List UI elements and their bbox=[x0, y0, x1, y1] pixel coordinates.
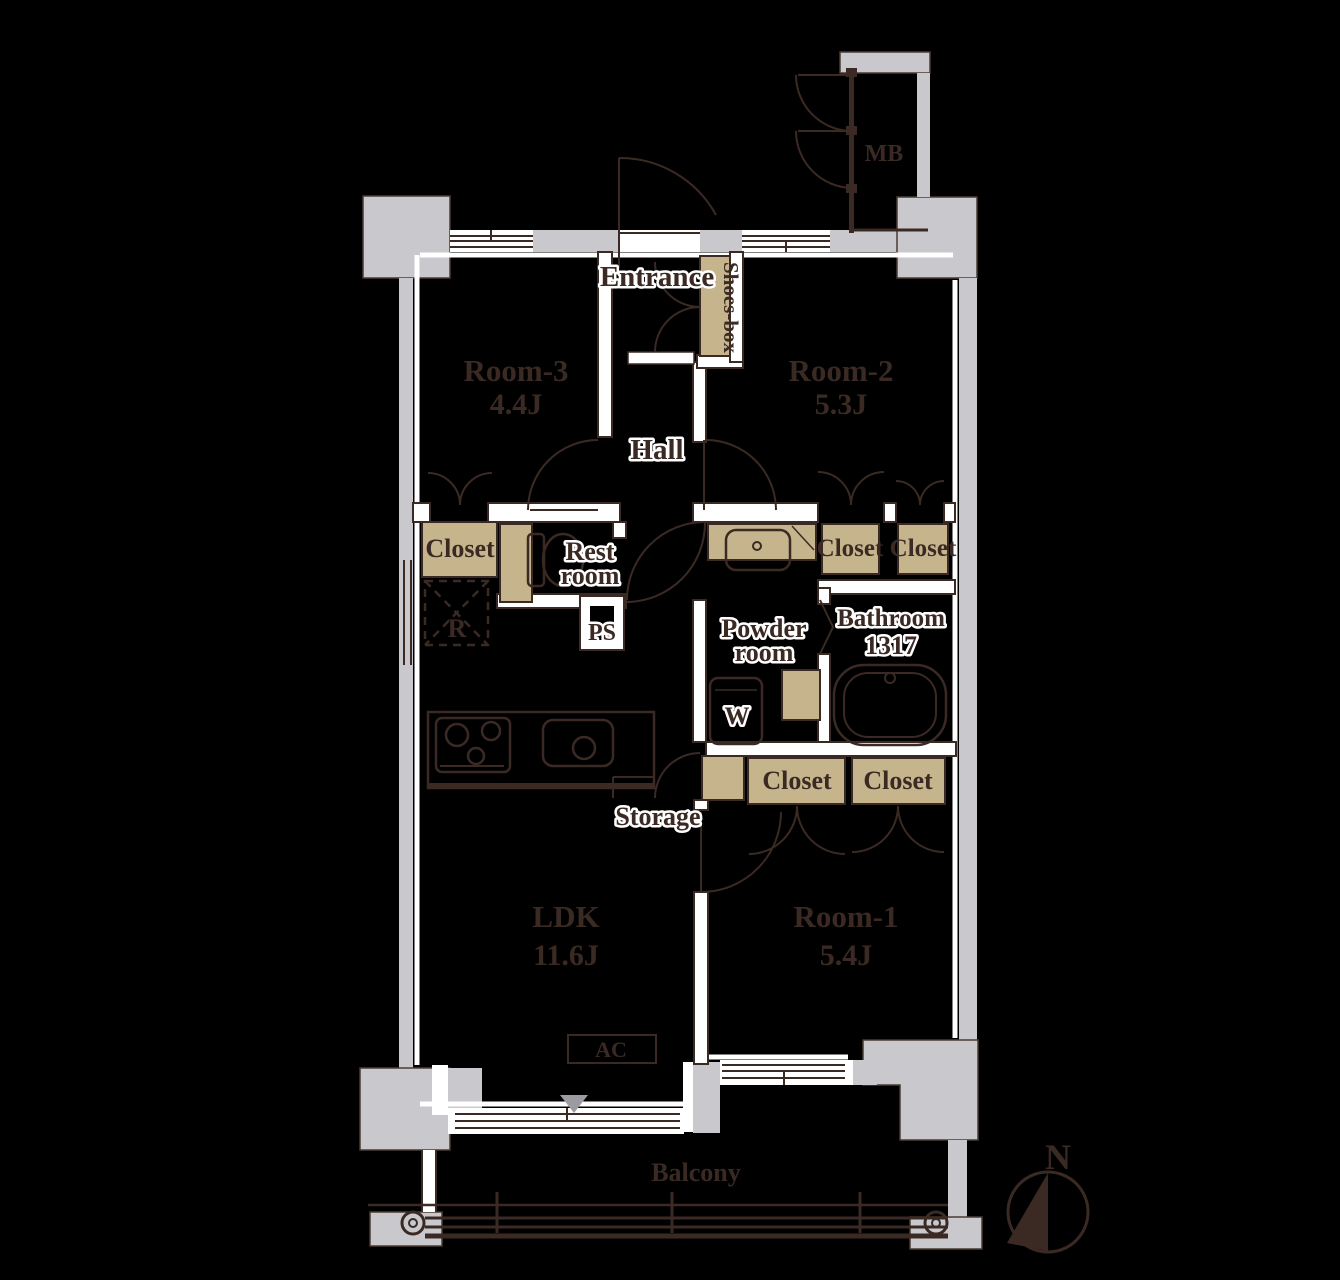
wall-restroom-right-stub bbox=[613, 522, 626, 538]
entrance-step bbox=[628, 352, 694, 364]
window-room1-bottom bbox=[720, 1060, 847, 1085]
window-ldk-bottom bbox=[448, 1108, 684, 1134]
room1-name: Room-1 bbox=[793, 899, 898, 934]
floor-plan-page: N Room-3 4.4J Room-2 5.3J LDK 11.6J Room… bbox=[0, 0, 1340, 1280]
balcony-wall-right bbox=[948, 1140, 967, 1217]
pillar-top-right bbox=[897, 197, 977, 278]
north-label: N bbox=[1045, 1137, 1071, 1177]
closet-room1-label-2: Closet bbox=[863, 766, 933, 795]
closet-room2-label-2: Closet bbox=[890, 535, 957, 562]
room3-size: 4.4J bbox=[490, 388, 543, 421]
wall-bottom-divider bbox=[693, 1062, 720, 1133]
window-room2-top bbox=[742, 230, 830, 252]
wall-top-c bbox=[830, 230, 900, 252]
wall-hall-room2 bbox=[693, 362, 706, 442]
closet-room3-label: Closet bbox=[425, 534, 495, 563]
shoes-box-label: Shoes-box bbox=[719, 262, 743, 354]
bathroom-size: 1317 bbox=[865, 631, 917, 660]
bathroom-label: Bathroom bbox=[837, 605, 945, 632]
meter-box-wall-right bbox=[917, 73, 930, 197]
wall-top-a bbox=[533, 230, 618, 252]
room1-size: 5.4J bbox=[820, 939, 873, 972]
balcony-label: Balcony bbox=[651, 1158, 741, 1187]
window-room3-top bbox=[450, 230, 533, 252]
floor-plan-svg: N Room-3 4.4J Room-2 5.3J LDK 11.6J Room… bbox=[0, 0, 1340, 1280]
refrigerator-label: R bbox=[448, 614, 467, 643]
powder-label-2: room bbox=[735, 638, 794, 667]
wall-closets-bathroom bbox=[818, 580, 955, 594]
room2-name: Room-2 bbox=[788, 353, 893, 388]
wall-top-b bbox=[700, 230, 742, 252]
wall-room3-bottom-left bbox=[413, 503, 430, 522]
entrance-label: Entrance bbox=[600, 261, 715, 293]
ldk-size: 11.6J bbox=[533, 939, 599, 972]
wall-hall-powder bbox=[693, 600, 706, 742]
room3-name: Room-3 bbox=[463, 353, 568, 388]
hall-label: Hall bbox=[630, 434, 683, 466]
entrance-threshold bbox=[618, 230, 700, 252]
ldk-name: LDK bbox=[532, 899, 599, 934]
wall-right bbox=[959, 278, 977, 1040]
room2-size: 5.3J bbox=[815, 388, 868, 421]
storage-box bbox=[702, 756, 744, 800]
washer-label: W bbox=[725, 703, 750, 730]
background bbox=[0, 0, 1340, 1280]
powder-cabinet bbox=[782, 670, 820, 720]
meter-box-label: MB bbox=[865, 141, 904, 167]
wall-room2-bottom-right bbox=[944, 503, 955, 522]
wall-ldk-room1 bbox=[694, 892, 708, 1064]
ac-label: AC bbox=[595, 1037, 627, 1062]
pillar-top-left bbox=[363, 196, 450, 278]
wall-room2-bottom-mid bbox=[884, 503, 896, 522]
wall-room2-bottom-left bbox=[693, 503, 818, 522]
closet-room1-label-1: Closet bbox=[762, 766, 832, 795]
pipe-space-label: PS bbox=[588, 620, 616, 646]
restroom-label-2: room bbox=[561, 561, 620, 590]
wall-restroom-top bbox=[488, 503, 620, 522]
closet-room2-label-1: Closet bbox=[817, 535, 884, 562]
wall-left bbox=[399, 278, 413, 1068]
balcony-divider bbox=[423, 1150, 435, 1212]
storage-label: Storage bbox=[615, 802, 700, 831]
